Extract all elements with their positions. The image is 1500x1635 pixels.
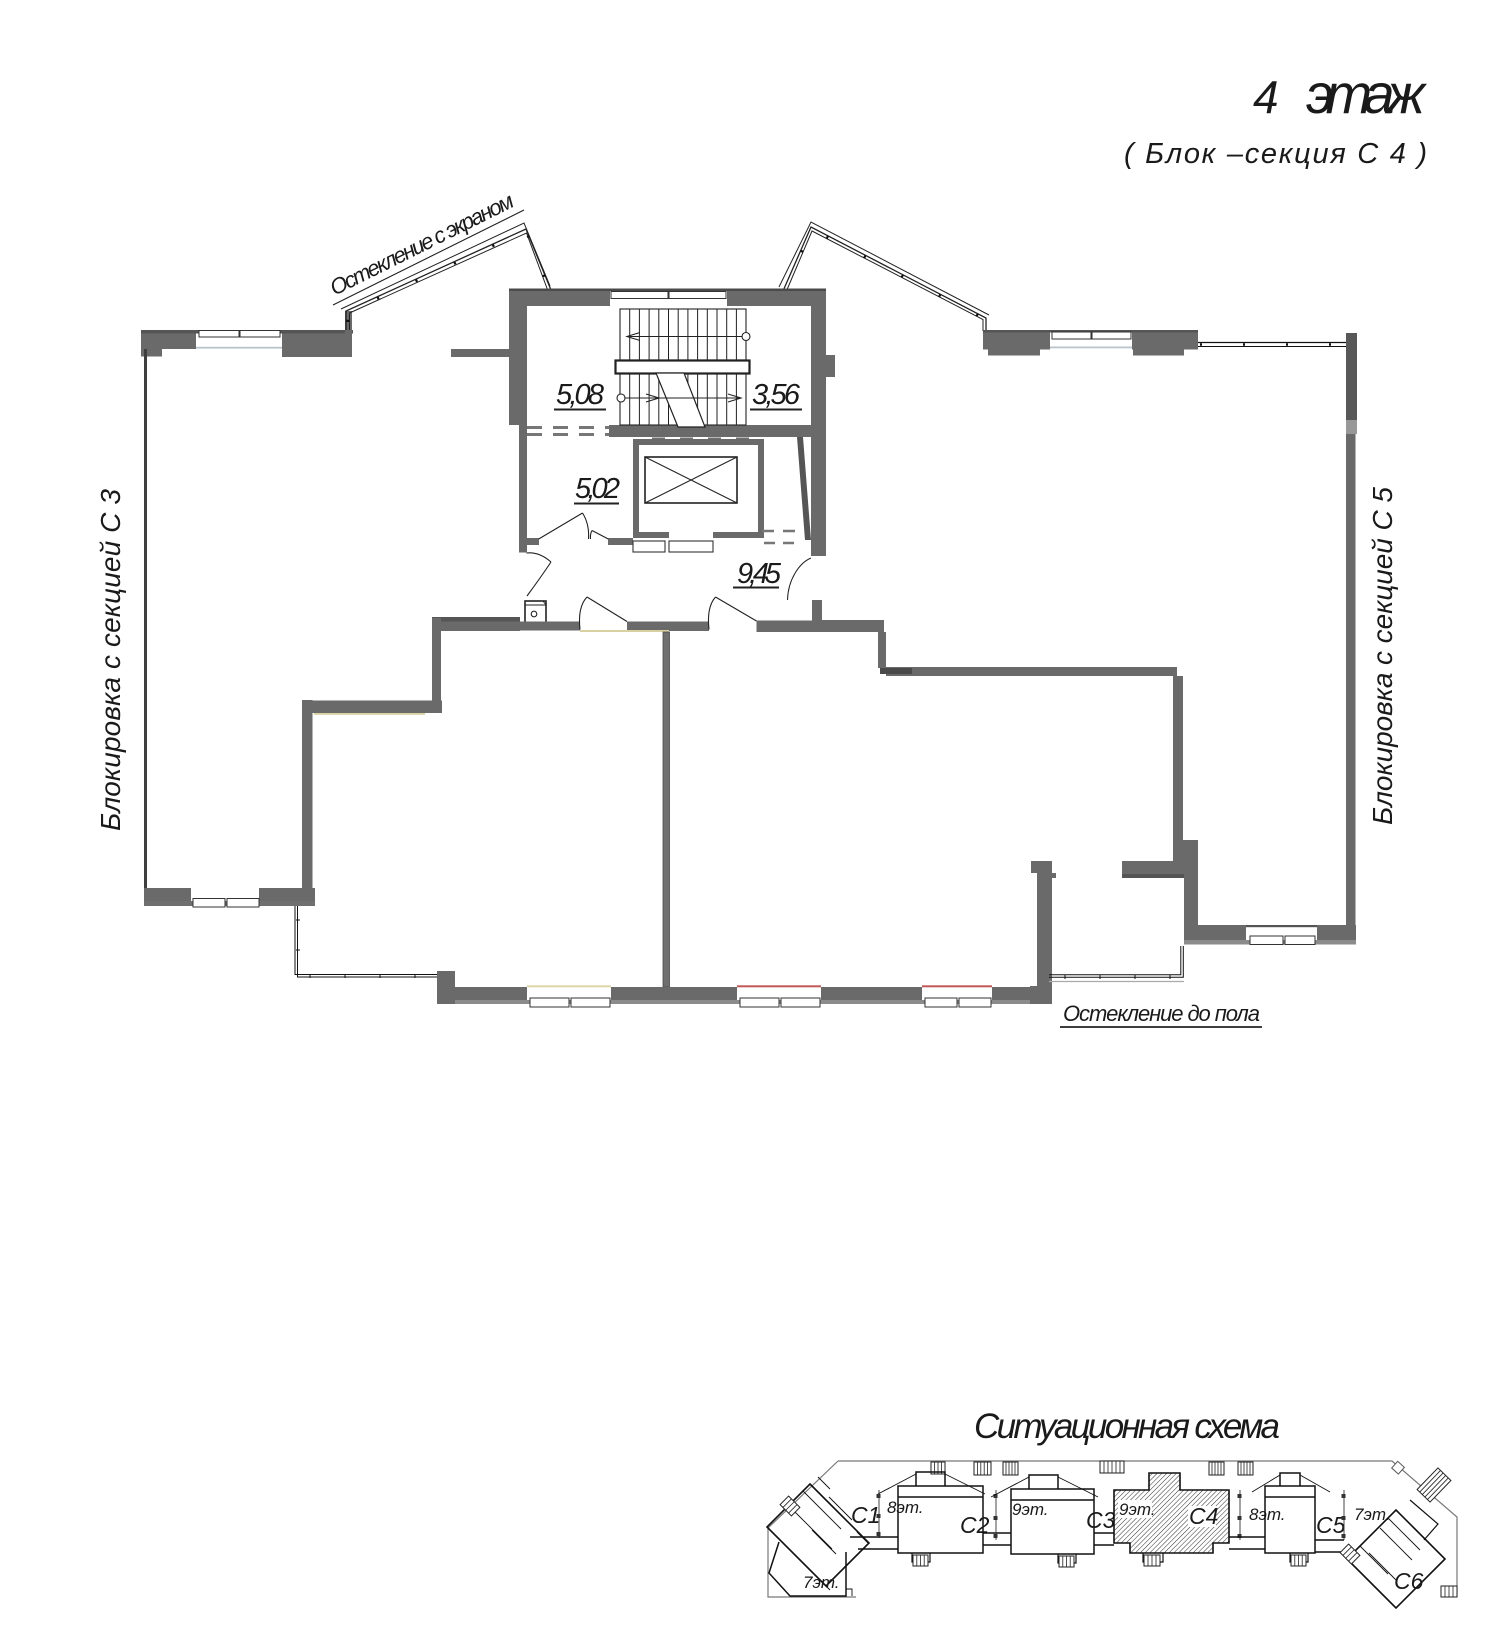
svg-text:С2: С2 [960,1512,990,1538]
svg-text:Блокировка с секцией С 5: Блокировка с секцией С 5 [1367,487,1398,825]
svg-text:( Блок –секция С 4 ): ( Блок –секция С 4 ) [1124,138,1427,170]
svg-text:8эт.: 8эт. [1249,1505,1286,1524]
svg-text:4: 4 [1253,71,1279,123]
svg-text:7эт.: 7эт. [803,1573,840,1592]
svg-text:3,56: 3,56 [752,379,801,411]
svg-text:9,45: 9,45 [737,558,782,590]
svg-text:С5: С5 [1316,1512,1346,1538]
svg-text:С1: С1 [851,1502,880,1528]
svg-text:С4: С4 [1189,1503,1218,1529]
svg-text:5,02: 5,02 [575,473,620,505]
svg-text:5,08: 5,08 [556,379,604,411]
svg-text:С6: С6 [1394,1568,1424,1594]
svg-text:9эт.: 9эт. [1012,1500,1049,1519]
svg-text:8эт.: 8эт. [887,1498,924,1517]
svg-text:Блокировка с секцией С 3: Блокировка с секцией С 3 [95,489,126,831]
svg-text:Ситуационная схема: Ситуационная схема [974,1407,1280,1446]
svg-text:этаж: этаж [1306,62,1427,125]
svg-text:9эт.: 9эт. [1119,1500,1156,1519]
svg-text:Остекление до пола: Остекление до пола [1063,1001,1260,1026]
svg-text:С3: С3 [1086,1507,1116,1533]
